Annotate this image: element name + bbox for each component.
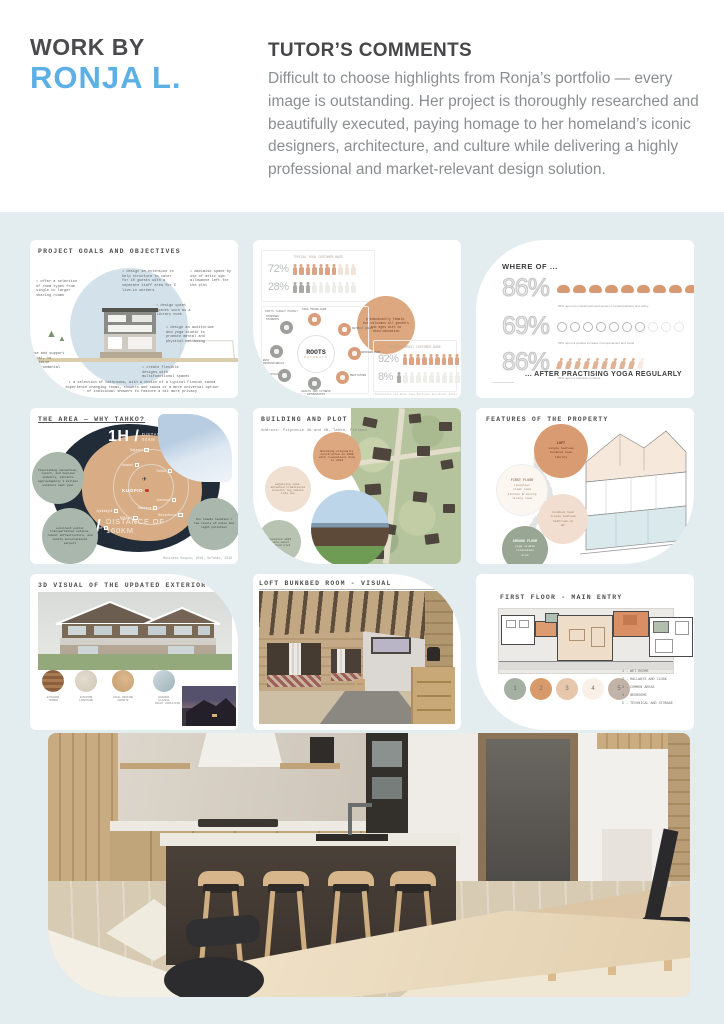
main-city-label: KUOPIO: [122, 488, 149, 493]
info-bubble: expansive 1883 square meter combined plo…: [257, 520, 301, 564]
source-note: (Statistics via Book Yoga Retreats and R…: [373, 393, 457, 396]
annotation: • create flexible designs with multifunc…: [142, 366, 190, 380]
person-icon: [351, 267, 356, 275]
distance-1h: 1H /: [108, 428, 139, 446]
smiley-icon: [674, 322, 684, 332]
faucet: [348, 803, 352, 835]
slide-title: PROJECT GOALS AND OBJECTIVES: [38, 248, 181, 255]
person-icon: [442, 375, 447, 383]
runner-icon: [556, 361, 563, 369]
city-label: Jyväskylä: [96, 509, 118, 513]
distance-2h-detail: DISTANCE OF 160KM: [106, 518, 165, 535]
smiley-icon: [661, 322, 671, 332]
market-node-icon: [348, 347, 361, 360]
annotation: • design an auditorium and yoga studio t…: [166, 326, 220, 345]
person-icon: [416, 357, 421, 365]
lamp: [427, 647, 440, 661]
person-icon: [422, 357, 427, 365]
city-label: Iisalmi: [122, 463, 139, 467]
slide-project-goals[interactable]: ▲ ▲ PROJECT GOALS AND OBJECTIVES • offer…: [30, 240, 238, 398]
market-node-icon: [270, 345, 283, 358]
oven-door: [372, 741, 402, 767]
chalet-photo: [311, 490, 389, 564]
extractor-hood: [198, 733, 283, 767]
floor-plan-drawing: [498, 608, 674, 674]
legend-item: 2 - HALLWAYS AND CLOAK: [622, 678, 667, 682]
wood-shelf: [120, 763, 190, 769]
island-countertop: [160, 833, 460, 846]
feature-circle-ground-floor: GROUND FLOOR yoga studio relaxation area: [502, 526, 548, 564]
market-node-label: STRESSED STUDENTS: [266, 315, 280, 321]
runner-icon: [637, 361, 644, 369]
black-chair-seat: [164, 957, 264, 997]
market-node-icon: [338, 323, 351, 336]
brain-icon: [557, 285, 570, 293]
student-name: RONJA L.: [30, 60, 182, 96]
legend-circle-4: 4: [582, 678, 604, 700]
info-bubble: adjoining semi-detached traditional Finn…: [265, 466, 311, 512]
person-icon: [299, 267, 304, 275]
axonometric-drawing: [576, 426, 691, 558]
tutor-comments-title: TUTOR’S COMMENTS: [268, 40, 472, 62]
annotation: • maximise space by use of attic sqm all…: [190, 270, 232, 289]
runner-icon: [583, 361, 590, 369]
person-icon: [410, 375, 415, 383]
person-icon: [306, 285, 311, 293]
chalet-drawing: [48, 598, 222, 656]
city-label: Varkaus: [138, 506, 157, 510]
plane-icon: ✈: [142, 476, 147, 483]
market-node-label: YOGA TRAVELLERS: [302, 308, 332, 311]
brain-icon-row: [555, 285, 694, 293]
night-render-label: NIGHT VARIATION: [146, 702, 180, 705]
brain-icon: [589, 285, 602, 293]
city-label: Savonlinna: [158, 513, 183, 517]
info-bubble: flourishing connection, resort, and tour…: [32, 452, 84, 504]
person-icon: [325, 285, 330, 293]
map-heading: ROOTS TARGET MARKET: [265, 310, 298, 313]
market-node-label: HEALTH AND FITNESS ENTHUSIASTS: [300, 390, 332, 396]
sink: [316, 834, 388, 841]
address-line: Address: Piipontie 4A and 4B, Tahko, Fin…: [261, 429, 367, 434]
person-icon: [429, 375, 434, 383]
slide-loft-visual[interactable]: LOFT BUNKBED ROOM - VISUAL: [253, 574, 461, 730]
loft-window: [371, 637, 411, 654]
source-line: [492, 382, 514, 386]
night-render: [182, 686, 236, 726]
runner-icon: [619, 361, 626, 369]
wall-recess: [602, 829, 652, 889]
person-icon: [338, 285, 343, 293]
smiley-icon: [557, 322, 567, 332]
stat-box-roots: ROOTS CURRENT CUSTOMER BASE 92% 8%: [373, 340, 457, 392]
market-node-icon: [278, 369, 291, 382]
person-icon: [345, 285, 350, 293]
tree-icon: ▲: [58, 334, 66, 343]
built-in-appliance: [310, 737, 334, 763]
smiley-icon: [596, 322, 606, 332]
slide-first-floor-plan[interactable]: FIRST FLOOR - MAIN ENTRY 1 2 3: [476, 574, 694, 730]
city-label: Kajaani: [130, 448, 149, 452]
person-icon: [325, 267, 330, 275]
smiley-icon: [609, 322, 619, 332]
person-icon: [403, 357, 408, 365]
brain-icon: [669, 285, 682, 293]
runner-icon: [574, 361, 581, 369]
material-label: EXTERIOR LIMESTONE: [69, 696, 103, 703]
person-icon: [312, 285, 317, 293]
person-icon: [448, 357, 453, 365]
brain-icon: [637, 285, 650, 293]
wood-wall-right: [668, 733, 690, 903]
person-icon: [319, 267, 324, 275]
pictogram-row: [292, 281, 357, 293]
legend-item: 4 - BEDROOMS: [622, 694, 646, 698]
market-node-label: MEDITATORS: [350, 374, 374, 377]
work-by-label: WORK BY: [30, 34, 145, 61]
legend-item: 5 - TECHNICAL AND STORAGE: [622, 702, 673, 706]
slide-title: FIRST FLOOR - MAIN ENTRY: [500, 594, 622, 601]
loft-render: [259, 591, 453, 724]
person-icon: [351, 285, 356, 293]
person-icon: [455, 375, 460, 383]
dresser: [411, 667, 455, 724]
stat-box-typical: TYPICAL YOGA CUSTOMER BASE 72% 28%: [261, 250, 375, 302]
market-node-icon: [308, 313, 321, 326]
pictogram-row: [292, 263, 357, 275]
annotation: • design an extension to help structure …: [122, 270, 176, 293]
person-icon: [293, 285, 298, 293]
slide-area-tahko[interactable]: 1H / DISTANCE OF 90KM 2H / DISTANCE OF 1…: [30, 408, 238, 564]
tutor-comments-body: Difficult to choose highlights from Ronj…: [268, 68, 710, 182]
person-icon: [293, 267, 298, 275]
percent-value: 8%: [378, 371, 393, 383]
slide-yoga-results[interactable]: WHERE OF ... 86% 86% report an overall i…: [476, 240, 694, 398]
city-label: Tahko: [156, 469, 172, 473]
brain-icon: [653, 285, 666, 293]
person-icon: [397, 375, 402, 383]
slide-customer-base[interactable]: TYPICAL YOGA CUSTOMER BASE 72% 28% predo…: [253, 240, 461, 398]
percent-value: 69%: [502, 312, 549, 341]
exterior-render: [38, 592, 232, 670]
annotation: • design quiet spaces such as a library …: [156, 304, 200, 318]
runner-icon: [610, 361, 617, 369]
faucet-spout: [348, 803, 372, 807]
legend-item: 3 - COMMON AREAS: [622, 686, 655, 690]
person-icon: [403, 375, 408, 383]
person-icon: [449, 375, 454, 383]
slide-exterior-visual[interactable]: 3D VISUAL OF THE UPDATED EXTERIOR: [30, 574, 238, 730]
target-market-map: ROOTS TARGET MARKET ROOTS RETREATS YOGA …: [261, 306, 369, 394]
brain-icon: [605, 285, 618, 293]
person-icon: [306, 267, 311, 275]
smiley-icon: [583, 322, 593, 332]
hero-kitchen-render[interactable]: [48, 733, 690, 997]
tree-icon: ▲: [46, 328, 57, 340]
brain-icon: [685, 285, 694, 293]
market-node-label: BUSY PROFESSIONALS: [263, 359, 283, 365]
percent-value: 92%: [378, 353, 399, 365]
bedding: [267, 675, 321, 687]
brain-icon: [621, 285, 634, 293]
lawn: [38, 654, 232, 670]
wood-shelf: [280, 763, 340, 769]
person-icon: [429, 357, 434, 365]
info-bubble: Building originally constructed in 1998 …: [313, 432, 361, 480]
stat-caption: 69% report a positive increase in temper…: [558, 341, 634, 345]
annotation: • a selection of bathrooms, with a choic…: [64, 381, 220, 395]
slide-title: BUILDING AND PLOT: [261, 416, 348, 423]
source-note: Business Kuopio, 2019; GoTahko, 2019: [163, 556, 232, 560]
legend-circle-1: 1: [504, 678, 526, 700]
stool: [355, 679, 365, 691]
annotation: • offer a selection of room types from s…: [36, 280, 82, 299]
slide-title: 3D VISUAL OF THE UPDATED EXTERIOR: [38, 582, 206, 589]
smiley-icon: [648, 322, 658, 332]
person-icon: [319, 285, 324, 293]
material-swatch-granite: [112, 670, 134, 692]
pictogram-row: [402, 353, 461, 365]
person-icon: [345, 267, 350, 275]
pictogram-row: [396, 371, 461, 383]
percent-value: 28%: [268, 281, 289, 293]
smiley-icon: [635, 322, 645, 332]
stat-caption: 86% report an overall improved sense of …: [558, 304, 649, 308]
annotation: use and support local, to minimise envir…: [32, 352, 70, 375]
slide-grid: ▲ ▲ PROJECT GOALS AND OBJECTIVES • offer…: [30, 240, 694, 730]
roots-center-node: ROOTS RETREATS: [297, 335, 335, 373]
person-icon: [455, 357, 460, 365]
results-footer: ... AFTER PRACTISING YOGA REGULARLY: [525, 371, 682, 378]
smiley-icon: [570, 322, 580, 332]
market-node-icon: [308, 377, 321, 390]
person-icon: [338, 267, 343, 275]
person-icon: [423, 375, 428, 383]
slide-property-features[interactable]: FEATURES OF THE PROPERTY LOFT single bed…: [476, 408, 694, 564]
person-icon: [442, 357, 447, 365]
stat-box-caption: ROOTS CURRENT CUSTOMER BASE: [374, 345, 456, 349]
slide-building-plot[interactable]: Building originally constructed in 1998 …: [253, 408, 461, 564]
person-icon: [332, 285, 337, 293]
info-bubble: excellent public transportation options,…: [42, 508, 98, 564]
person-icon: [312, 267, 317, 275]
person-icon: [332, 267, 337, 275]
runner-icon: [628, 361, 635, 369]
portfolio-page: WORK BY RONJA L. TUTOR’S COMMENTS Diffic…: [0, 0, 724, 1024]
runner-icon: [565, 361, 572, 369]
runner-icon: [592, 361, 599, 369]
legend-item: 1 - WET ROOMS: [622, 670, 648, 674]
legend-circle-3: 3: [556, 678, 578, 700]
feature-circle-loft: LOFT single bedroom bunkbed room library: [534, 424, 588, 478]
person-icon: [435, 357, 440, 365]
material-label: EXTERIOR TIMBER: [36, 696, 70, 703]
runner-icon-row: [555, 357, 645, 369]
material-label: LOCAL ROOFING GRANITE: [106, 696, 140, 703]
person-icon: [416, 375, 421, 383]
slide-title: WHERE OF ...: [502, 262, 558, 271]
market-node-label: RETREAT GOERS: [352, 327, 376, 330]
city-label: Mikkeli: [120, 516, 138, 520]
person-icon: [436, 375, 441, 383]
material-swatch-glass: [153, 670, 175, 692]
slide-title: LOFT BUNKBED ROOM - VISUAL: [259, 580, 455, 590]
material-swatch-limestone: [75, 670, 97, 692]
doorway-opening: [486, 739, 570, 883]
city-label: Joensuu: [156, 498, 176, 502]
percent-value: 86%: [502, 274, 549, 303]
person-icon: [409, 357, 414, 365]
smiley-icon-row: [555, 322, 685, 332]
oven-door: [372, 777, 402, 799]
info-bubble: the remote location = low levels of nois…: [188, 498, 238, 550]
smiley-icon: [622, 322, 632, 332]
stat-box-caption: TYPICAL YOGA CUSTOMER BASE: [262, 255, 374, 259]
runner-icon: [601, 361, 608, 369]
material-swatch-wood: [42, 670, 64, 692]
percent-value: 72%: [268, 263, 289, 275]
market-node-icon: [280, 321, 293, 334]
slide-title: THE AREA — WHY TAHKO?: [38, 416, 145, 423]
feature-circle-rooms: bunkbed room triple bedroom bathroom x2 …: [538, 494, 588, 544]
gas-hob: [198, 819, 278, 827]
legend-circle-2: 2: [530, 678, 552, 700]
market-node-icon: [336, 371, 349, 384]
market-node-label: SPIRITUAL YOGIS: [264, 373, 278, 379]
brain-icon: [573, 285, 586, 293]
person-icon: [299, 285, 304, 293]
